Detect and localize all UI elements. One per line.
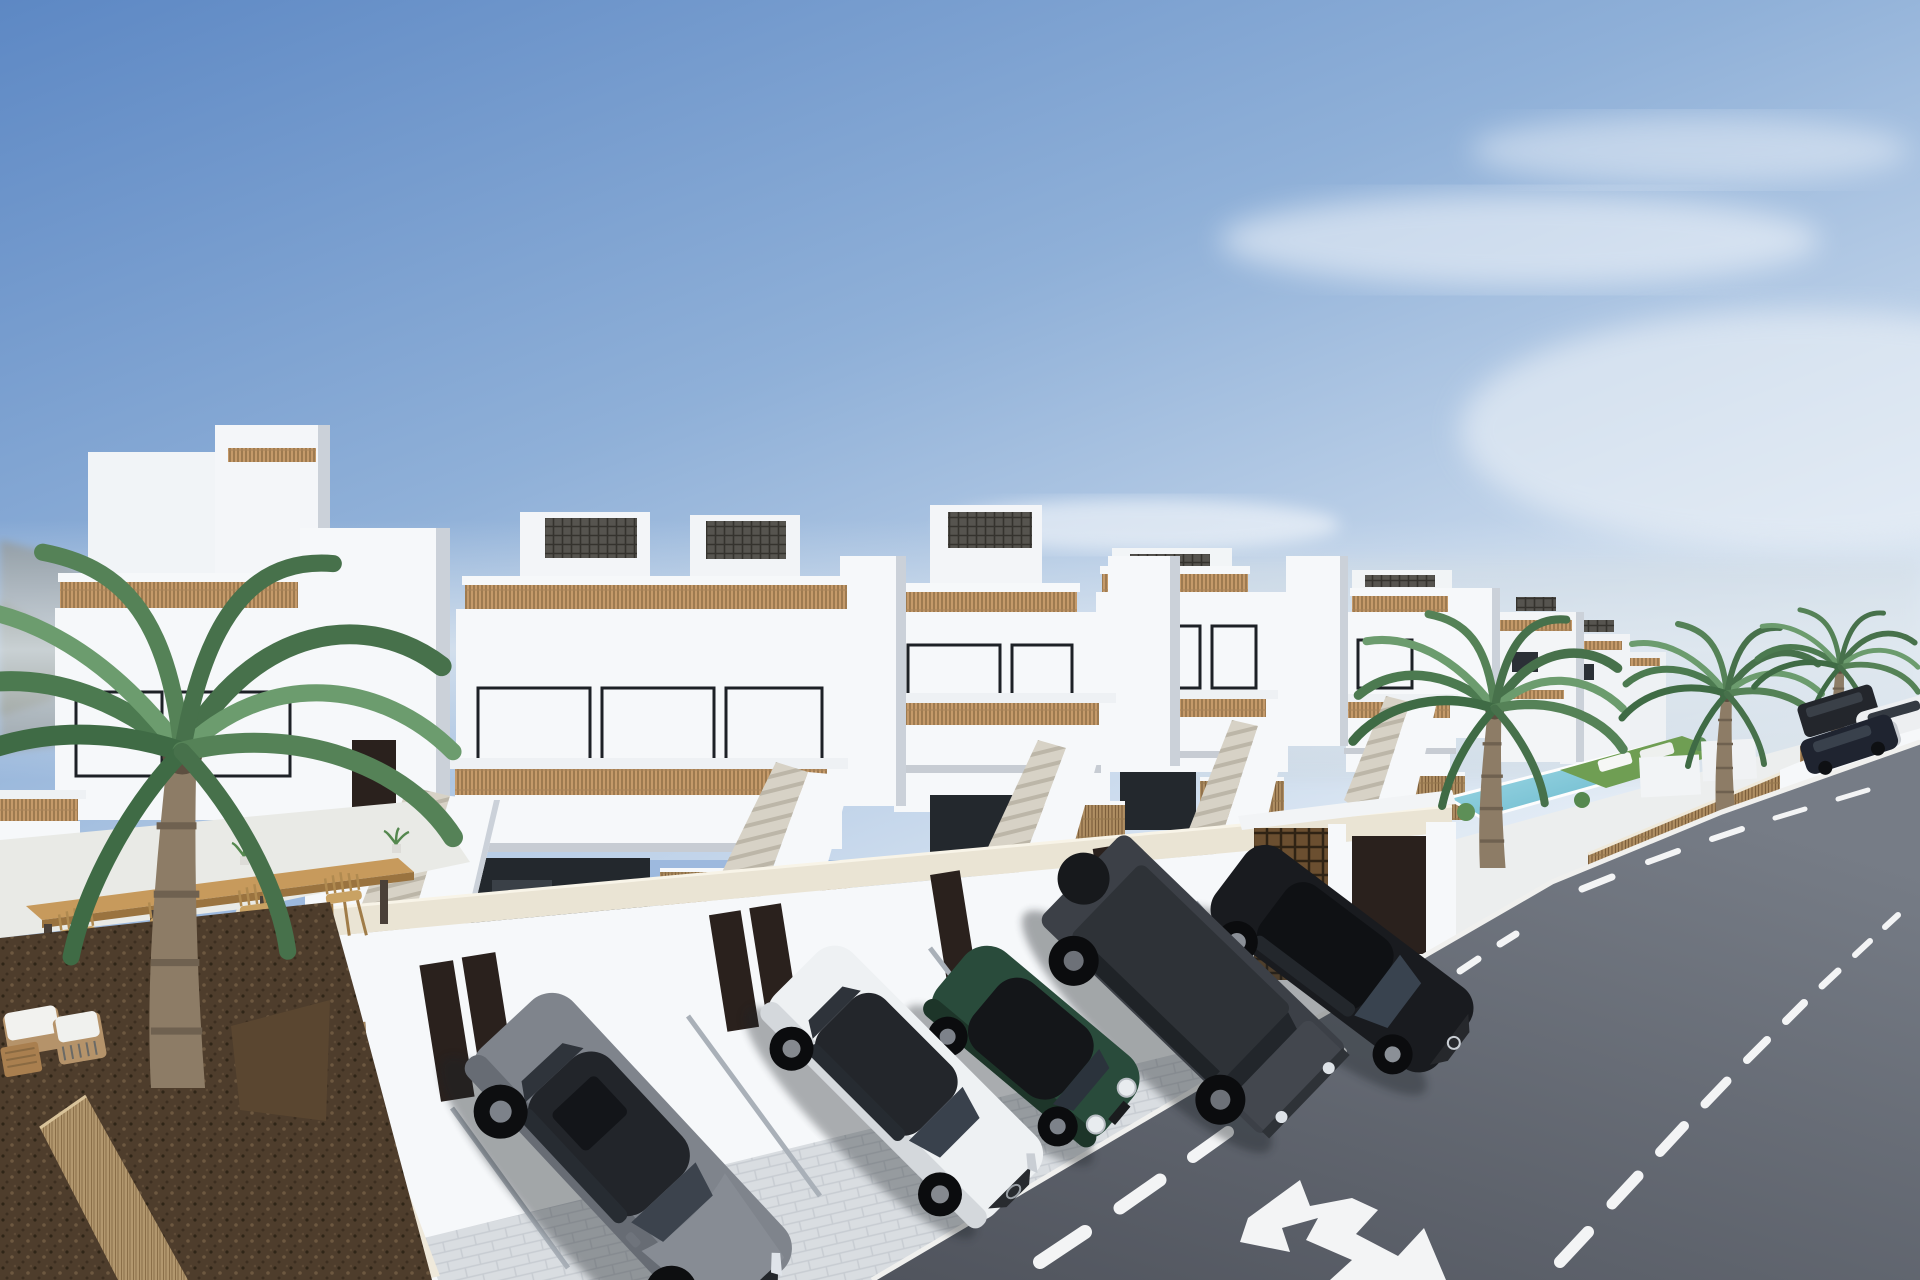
unit-3-balcony-cane	[895, 703, 1099, 725]
unit-1-left-balcony-slab	[0, 790, 86, 799]
cloud-wisp-2	[1470, 116, 1910, 184]
unit-3-balcony-slab	[890, 693, 1116, 703]
unit-2-roof-cane	[465, 585, 847, 609]
unit-6-roof-screen	[1516, 597, 1556, 611]
unit-2-tower-shadow	[896, 556, 906, 806]
unit-4-stair-tower	[1286, 556, 1348, 746]
unit-2-roof-rail	[462, 576, 852, 585]
unit-3-roof-screen	[948, 512, 1032, 548]
unit-2-roof-screen-2	[706, 521, 786, 559]
pool-plant-1	[1457, 803, 1475, 821]
unit-3-stair-tower	[1108, 556, 1180, 766]
unit-1-left-balcony-cane	[0, 799, 78, 821]
unit-4-ground-glass	[1120, 772, 1196, 830]
pool-plant-2	[1574, 792, 1590, 808]
unit-7-roof-screen	[1580, 620, 1614, 632]
unit-5-roof-screen	[1365, 575, 1435, 587]
render-viewport	[0, 0, 1920, 1280]
render-canvas	[0, 0, 1920, 1280]
unit-5-roof-rail	[1350, 588, 1452, 596]
lounge-armchair	[52, 1010, 108, 1066]
unit-5-roof-cane	[1352, 596, 1448, 612]
unit-3-tower-shadow	[1170, 556, 1180, 766]
unit-3-roof-rail	[900, 583, 1080, 592]
unit-3-roof-cane	[903, 592, 1077, 612]
unit-1-top-cane	[228, 448, 316, 462]
cloud-wisp-1	[1220, 194, 1820, 286]
unit-2-roof-screen-1	[545, 518, 637, 558]
plant-pot	[392, 844, 401, 853]
unit-4-tower-shadow	[1340, 556, 1348, 746]
table-leg	[380, 880, 388, 924]
